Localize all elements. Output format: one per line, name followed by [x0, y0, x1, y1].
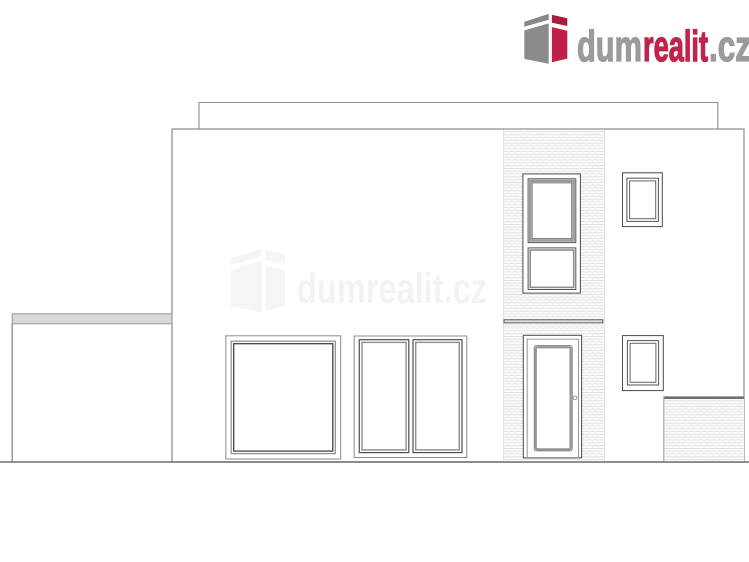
svg-text:dumrealit.cz: dumrealit.cz	[297, 265, 487, 313]
svg-text:dum: dum	[577, 22, 642, 71]
svg-text:.cz: .cz	[709, 22, 749, 71]
svg-text:realit: realit	[643, 22, 708, 71]
